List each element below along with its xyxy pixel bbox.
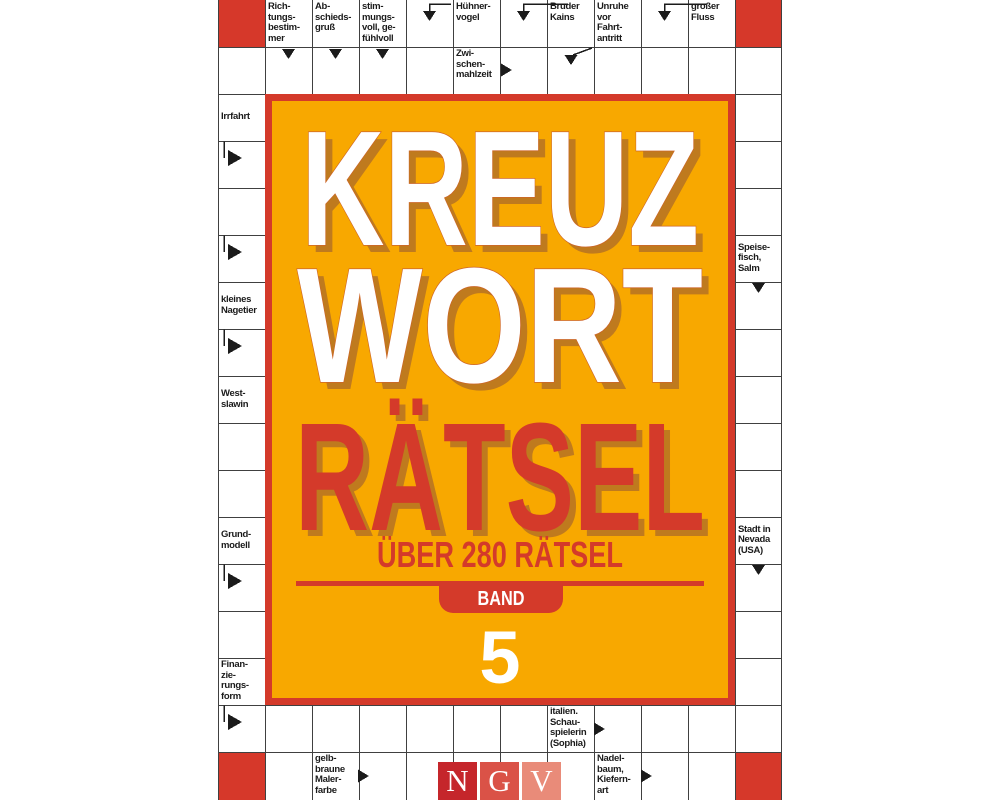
logo-letter-n: N [438, 762, 477, 800]
clue-richtungsbestimmer: Rich- tungs- bestim- mer [265, 0, 311, 47]
arrow-right-icon [501, 64, 512, 77]
arrow-down-icon [423, 11, 436, 21]
subtitle: ÜBER 280 RÄTSEL [377, 534, 623, 575]
arrow-down-icon [752, 283, 765, 293]
clue-nadelbaum: Nadel- baum, Kiefern- art [594, 752, 640, 799]
clue-grosser-fluss: großer Fluss [688, 0, 734, 47]
arrow-right-icon [594, 723, 605, 736]
arrow-right-icon [228, 244, 242, 260]
arrow-down-icon [752, 565, 765, 575]
arrow-down-icon [565, 55, 578, 65]
clue-ital-schauspielerin: italien. Schau- spielerin (Sophia) [547, 705, 593, 752]
arrow-down-icon [376, 49, 389, 59]
blocked-cell [218, 0, 265, 47]
clue-malerfarbe: gelb- braune Maler- farbe [312, 752, 358, 799]
logo-letter-v: V [522, 762, 561, 800]
clue-westslawin: West- slawin [218, 376, 264, 423]
blocked-cell [735, 0, 782, 47]
clue-bruder-kains: Bruder Kains [547, 0, 593, 47]
clue-irrfahrt: Irrfahrt [218, 94, 264, 141]
arrow-right-icon [228, 150, 242, 166]
arrow-right-icon [228, 573, 242, 589]
blocked-cell [735, 752, 782, 800]
arrow-right-icon [228, 714, 242, 730]
arrow-down-icon [329, 49, 342, 59]
clue-abschiedsgruss: Ab- schieds- gruß [312, 0, 358, 47]
book-cover: Rich- tungs- bestim- mer Ab- schieds- gr… [218, 0, 782, 800]
clue-stadt-nevada: Stadt in Nevada (USA) [735, 517, 781, 564]
clue-kleines-nagetier: kleines Nagetier [218, 282, 264, 329]
arrow-right-icon [641, 770, 652, 783]
band-number: 5 [479, 616, 520, 699]
title-panel: KREUZ KREUZ WORT WORT RÄTSEL RÄTSEL ÜBER… [265, 94, 735, 705]
clue-speisefisch: Speise- fisch, Salm [735, 235, 781, 282]
clue-zwischenmahlzeit: Zwi- schen- mahlzeit [453, 47, 499, 94]
arrow-down-icon [517, 11, 530, 21]
blocked-cell [218, 752, 265, 800]
clue-finanzierungsform: Finan- zie- rungs- form [218, 658, 264, 705]
arrow-down-icon [430, 4, 452, 11]
band-label: BAND [478, 588, 525, 610]
arrow-down-icon [573, 48, 592, 55]
logo-letter-g: G [480, 762, 519, 800]
clue-unruhe: Unruhe vor Fahrt- antritt [594, 0, 640, 47]
clue-stimmungsvoll: stim- mungs- voll, ge- fühlvoll [359, 0, 405, 47]
arrow-right-icon [228, 338, 242, 354]
clue-huehnervogel: Hühner- vogel [453, 0, 499, 47]
arrow-down-icon [658, 11, 671, 21]
arrow-right-icon [358, 770, 369, 783]
clue-grundmodell: Grund- modell [218, 517, 264, 564]
arrow-down-icon [282, 49, 295, 59]
title-line2: WORT [297, 234, 703, 417]
